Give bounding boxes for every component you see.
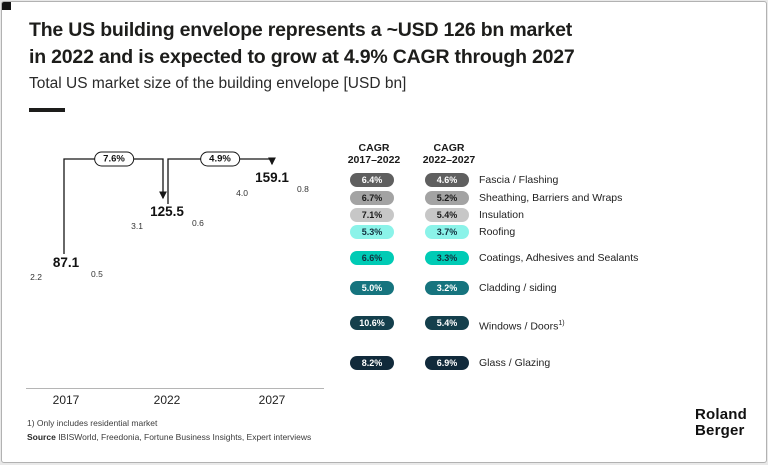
- segment-value-sheathing-2017: 2.2: [16, 272, 42, 282]
- roland-berger-logo: Roland Berger: [695, 407, 747, 439]
- cagr2-pill-cladding: 3.2%: [425, 281, 469, 295]
- cagr2-pill-roofing: 3.7%: [425, 225, 469, 239]
- cagr2-pill-sheathing: 5.2%: [425, 191, 469, 205]
- cagr-column1-header: CAGR 2017–2022: [345, 142, 403, 166]
- source-text: IBISWorld, Freedonia, Fortune Business I…: [56, 432, 311, 442]
- cagr-column2-header: CAGR 2022–2027: [420, 142, 478, 166]
- cagr2-pill-insulation: 5.4%: [425, 208, 469, 222]
- legend-row-roofing: 5.3%3.7%Roofing: [2, 225, 767, 241]
- x-axis-line: [26, 388, 324, 389]
- legend-row-insulation: 7.1%5.4%Insulation: [2, 208, 767, 224]
- legend-label-coatings: Coatings, Adhesives and Sealants: [479, 251, 638, 266]
- x-axis-label-2017: 2017: [36, 393, 96, 407]
- cagr2-pill-glass: 6.9%: [425, 356, 469, 370]
- cagr1-pill-coatings: 6.6%: [350, 251, 394, 265]
- slide-title-line1: The US building envelope represents a ~U…: [29, 17, 743, 44]
- legend-row-glass: 8.2%6.9%Glass / Glazing: [2, 356, 767, 372]
- cagr2-pill-fascia: 4.6%: [425, 173, 469, 187]
- cagr1-pill-fascia: 6.4%: [350, 173, 394, 187]
- cagr2-pill-windows: 5.4%: [425, 316, 469, 330]
- x-axis-label-2022: 2022: [137, 393, 197, 407]
- legend-label-glass: Glass / Glazing: [479, 356, 550, 371]
- source-label: Source: [27, 432, 56, 442]
- cagr1-pill-insulation: 7.1%: [350, 208, 394, 222]
- legend-label-cladding: Cladding / siding: [479, 281, 557, 296]
- legend-label-roofing: Roofing: [479, 225, 515, 240]
- slide-title-line2: in 2022 and is expected to grow at 4.9% …: [29, 44, 743, 71]
- footnote: 1) Only includes residential market: [27, 418, 157, 428]
- corner-marker: [2, 2, 11, 10]
- legend-label-insulation: Insulation: [479, 208, 524, 223]
- legend-row-sheathing: 6.7%5.2%Sheathing, Barriers and Wraps: [2, 191, 767, 207]
- legend-label-sheathing: Sheathing, Barriers and Wraps: [479, 191, 622, 206]
- legend-label-fascia: Fascia / Flashing: [479, 173, 558, 188]
- legend-row-windows: 10.6%5.4%Windows / Doors1): [2, 316, 767, 332]
- header: The US building envelope represents a ~U…: [29, 17, 743, 95]
- cagr1-pill-windows: 10.6%: [350, 316, 394, 330]
- cagr1-pill-roofing: 5.3%: [350, 225, 394, 239]
- source-line: Source IBISWorld, Freedonia, Fortune Bus…: [27, 432, 311, 442]
- cagr1-pill-cladding: 5.0%: [350, 281, 394, 295]
- cagr1-pill-glass: 8.2%: [350, 356, 394, 370]
- cagr2-pill-coatings: 3.3%: [425, 251, 469, 265]
- cagr1-pill-sheathing: 6.7%: [350, 191, 394, 205]
- legend-label-windows: Windows / Doors1): [479, 316, 565, 335]
- title-underline: [29, 108, 65, 112]
- legend-row-coatings: 6.6%3.3%Coatings, Adhesives and Sealants: [2, 251, 767, 267]
- cagr-capsule-2022-2027: 4.9%: [200, 152, 240, 167]
- legend-row-fascia: 6.4%4.6%Fascia / Flashing: [2, 173, 767, 189]
- x-axis-label-2027: 2027: [242, 393, 302, 407]
- segment-value-fascia-2017: 0.5: [91, 269, 117, 279]
- cagr-capsule-2017-2022: 7.6%: [94, 152, 134, 167]
- slide-subtitle: Total US market size of the building env…: [29, 73, 743, 95]
- slide: The US building envelope represents a ~U…: [1, 1, 767, 463]
- legend-row-cladding: 5.0%3.2%Cladding / siding: [2, 281, 767, 297]
